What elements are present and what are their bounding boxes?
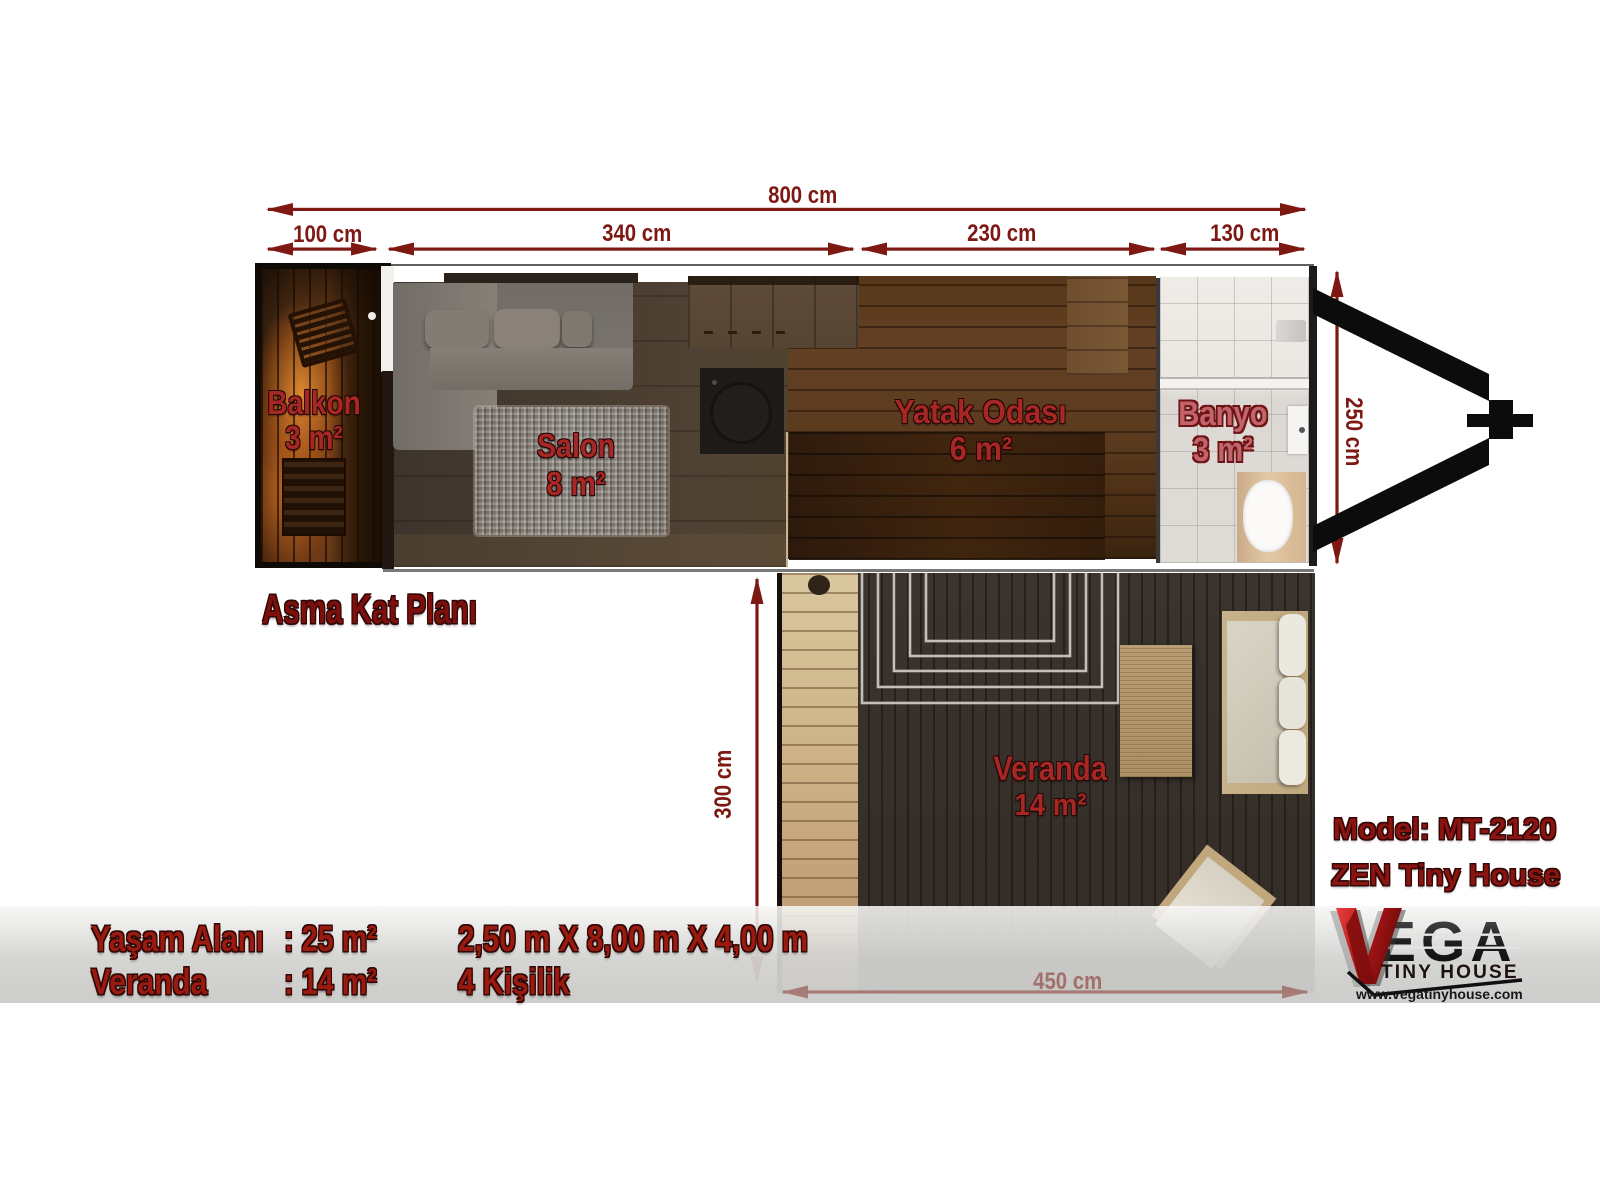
svg-text:www.vegatinyhouse.com: www.vegatinyhouse.com <box>1355 986 1523 1002</box>
svg-text:TINY HOUSE: TINY HOUSE <box>1381 962 1519 983</box>
